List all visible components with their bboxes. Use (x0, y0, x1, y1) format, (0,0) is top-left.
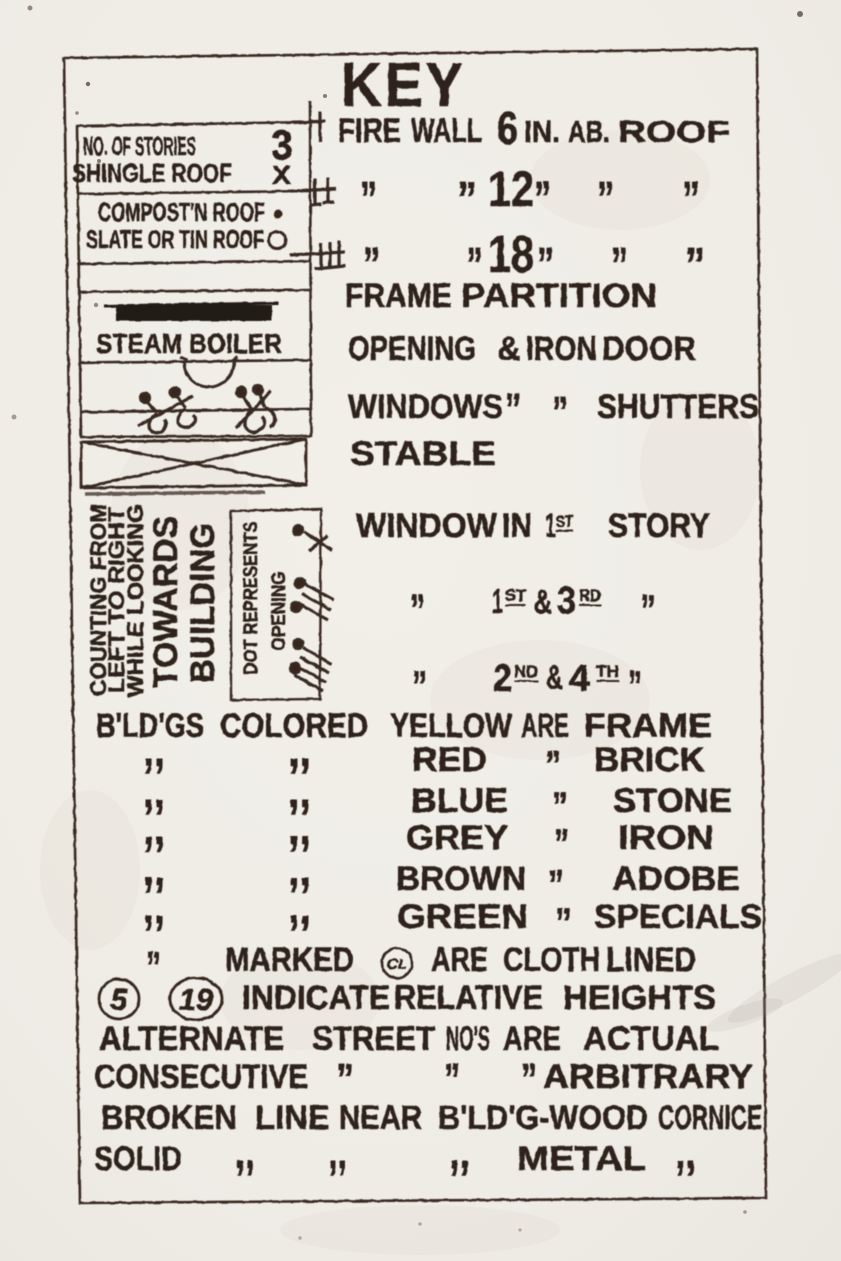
svg-text:”: ” (457, 173, 477, 226)
svg-text:”: ” (146, 943, 161, 992)
svg-text:”: ” (628, 662, 642, 711)
svg-text:18: 18 (488, 226, 534, 284)
svg-text:BROWN: BROWN (396, 860, 526, 898)
svg-text:STORY: STORY (608, 507, 710, 545)
svg-text:&: & (546, 659, 563, 697)
svg-text:ST: ST (505, 586, 527, 605)
svg-text:FIRE: FIRE (338, 112, 401, 150)
svg-text:FRAME: FRAME (345, 277, 452, 315)
svg-text:CL: CL (387, 956, 407, 973)
svg-text:&: & (534, 583, 552, 621)
svg-text:GREEN: GREEN (397, 898, 528, 936)
svg-text:6: 6 (497, 102, 518, 154)
svg-text:ST: ST (556, 512, 573, 531)
svg-text:METAL: METAL (517, 1140, 646, 1178)
svg-text:RD: RD (579, 586, 601, 605)
svg-text:DOT REPRESENTS: DOT REPRESENTS (241, 522, 262, 675)
svg-text:&: & (497, 330, 521, 368)
svg-text:”: ” (336, 1055, 354, 1104)
svg-text:,,: ,, (143, 881, 165, 934)
svg-text:,,: ,, (235, 1126, 255, 1179)
svg-text:”: ” (685, 239, 705, 292)
svg-text:WALL: WALL (411, 112, 482, 150)
svg-text:STEAM BOILER: STEAM BOILER (96, 328, 282, 359)
svg-text:INDICATE: INDICATE (242, 979, 390, 1017)
svg-text:IN.: IN. (524, 114, 560, 149)
svg-text:”: ” (554, 822, 569, 866)
svg-text:5: 5 (110, 982, 128, 1017)
svg-text:ARE: ARE (503, 1020, 561, 1058)
svg-text:OPENING: OPENING (348, 330, 476, 368)
svg-text:WHILE LOOKING: WHILE LOOKING (123, 505, 148, 698)
svg-text:ADOBE: ADOBE (612, 860, 740, 898)
svg-text:TH: TH (596, 662, 619, 681)
svg-text:GREY: GREY (406, 819, 508, 857)
svg-text:SHUTTERS: SHUTTERS (597, 388, 759, 426)
svg-text:3: 3 (557, 580, 576, 622)
svg-text:1: 1 (545, 507, 556, 545)
svg-text:LINE: LINE (255, 1099, 330, 1137)
svg-text:”: ” (505, 385, 521, 434)
svg-text:TOWARDS: TOWARDS (147, 516, 185, 688)
svg-text:ARBITRARY: ARBITRARY (543, 1058, 753, 1096)
svg-text:,,: ,, (328, 1126, 347, 1179)
svg-text:STONE: STONE (613, 782, 732, 820)
svg-text:ARE: ARE (521, 707, 569, 745)
svg-text:SPECIALS: SPECIALS (594, 898, 762, 936)
svg-text:”: ” (555, 901, 572, 945)
svg-text:”: ” (597, 173, 614, 226)
svg-text:RED: RED (412, 741, 487, 779)
svg-text:IN: IN (502, 507, 532, 545)
svg-text:1: 1 (492, 583, 503, 621)
svg-text:BRICK: BRICK (594, 741, 705, 779)
svg-text:IRON: IRON (526, 330, 597, 368)
svg-text:CORNICE: CORNICE (658, 1099, 762, 1137)
svg-text:MARKED: MARKED (225, 941, 354, 979)
svg-text:RELATIVE: RELATIVE (394, 979, 543, 1017)
svg-text:COMPOST'N ROOF: COMPOST'N ROOF (98, 197, 265, 227)
svg-text:,,: ,, (449, 1126, 470, 1179)
svg-text:ALTERNATE: ALTERNATE (99, 1020, 284, 1058)
svg-text:4: 4 (569, 658, 590, 700)
svg-text:BUILDING: BUILDING (184, 523, 222, 683)
svg-text:”: ” (521, 1055, 537, 1104)
svg-text:”: ” (640, 586, 656, 635)
svg-text:BLUE: BLUE (411, 782, 508, 820)
svg-text:SHINGLE ROOF: SHINGLE ROOF (72, 158, 232, 188)
svg-text:STREET: STREET (312, 1020, 435, 1058)
svg-text:ARE: ARE (431, 941, 488, 979)
svg-text:2: 2 (493, 658, 512, 700)
svg-text:WINDOWS: WINDOWS (348, 388, 503, 426)
svg-text:FRAME: FRAME (584, 707, 712, 745)
svg-text:19: 19 (179, 982, 214, 1017)
svg-text:NO. OF STORIES: NO. OF STORIES (83, 131, 196, 161)
svg-text:NO'S: NO'S (446, 1020, 490, 1058)
svg-text:”: ” (412, 662, 427, 711)
svg-text:CONSECUTIVE: CONSECUTIVE (94, 1058, 308, 1096)
svg-text:NEAR: NEAR (339, 1099, 422, 1137)
svg-text:YELLOW: YELLOW (390, 707, 513, 745)
svg-text:,,: ,, (288, 881, 311, 934)
svg-text:DOOR: DOOR (602, 330, 696, 368)
svg-text:SOLID: SOLID (94, 1140, 182, 1178)
svg-text:BROKEN: BROKEN (101, 1099, 237, 1137)
svg-text:ND: ND (514, 662, 538, 681)
svg-text:ROOF: ROOF (618, 114, 730, 149)
svg-text:LINED: LINED (606, 941, 696, 979)
svg-text:”: ” (545, 744, 561, 788)
svg-text:PARTITION: PARTITION (461, 277, 657, 315)
svg-text:OPENING: OPENING (269, 572, 290, 651)
svg-text:CLOTH: CLOTH (503, 941, 600, 979)
svg-text:AB.: AB. (568, 114, 610, 149)
svg-text:WINDOW: WINDOW (356, 507, 498, 545)
svg-text:”: ” (682, 173, 700, 226)
svg-text:12: 12 (488, 161, 534, 217)
svg-text:”: ” (534, 173, 551, 226)
svg-text:”: ” (552, 388, 568, 437)
svg-text:”: ” (360, 173, 377, 226)
svg-text:KEY: KEY (341, 51, 466, 120)
svg-text:”: ” (444, 1055, 460, 1104)
svg-text:STABLE: STABLE (350, 435, 496, 473)
svg-text:”: ” (410, 586, 425, 635)
svg-text:,,: ,, (675, 1126, 696, 1179)
svg-text:SLATE OR TIN ROOF: SLATE OR TIN ROOF (86, 226, 264, 254)
svg-text:X: X (272, 160, 292, 190)
svg-text:HEIGHTS: HEIGHTS (563, 979, 716, 1017)
svg-text:IRON: IRON (618, 819, 714, 857)
svg-text:ACTUAL: ACTUAL (583, 1020, 719, 1058)
